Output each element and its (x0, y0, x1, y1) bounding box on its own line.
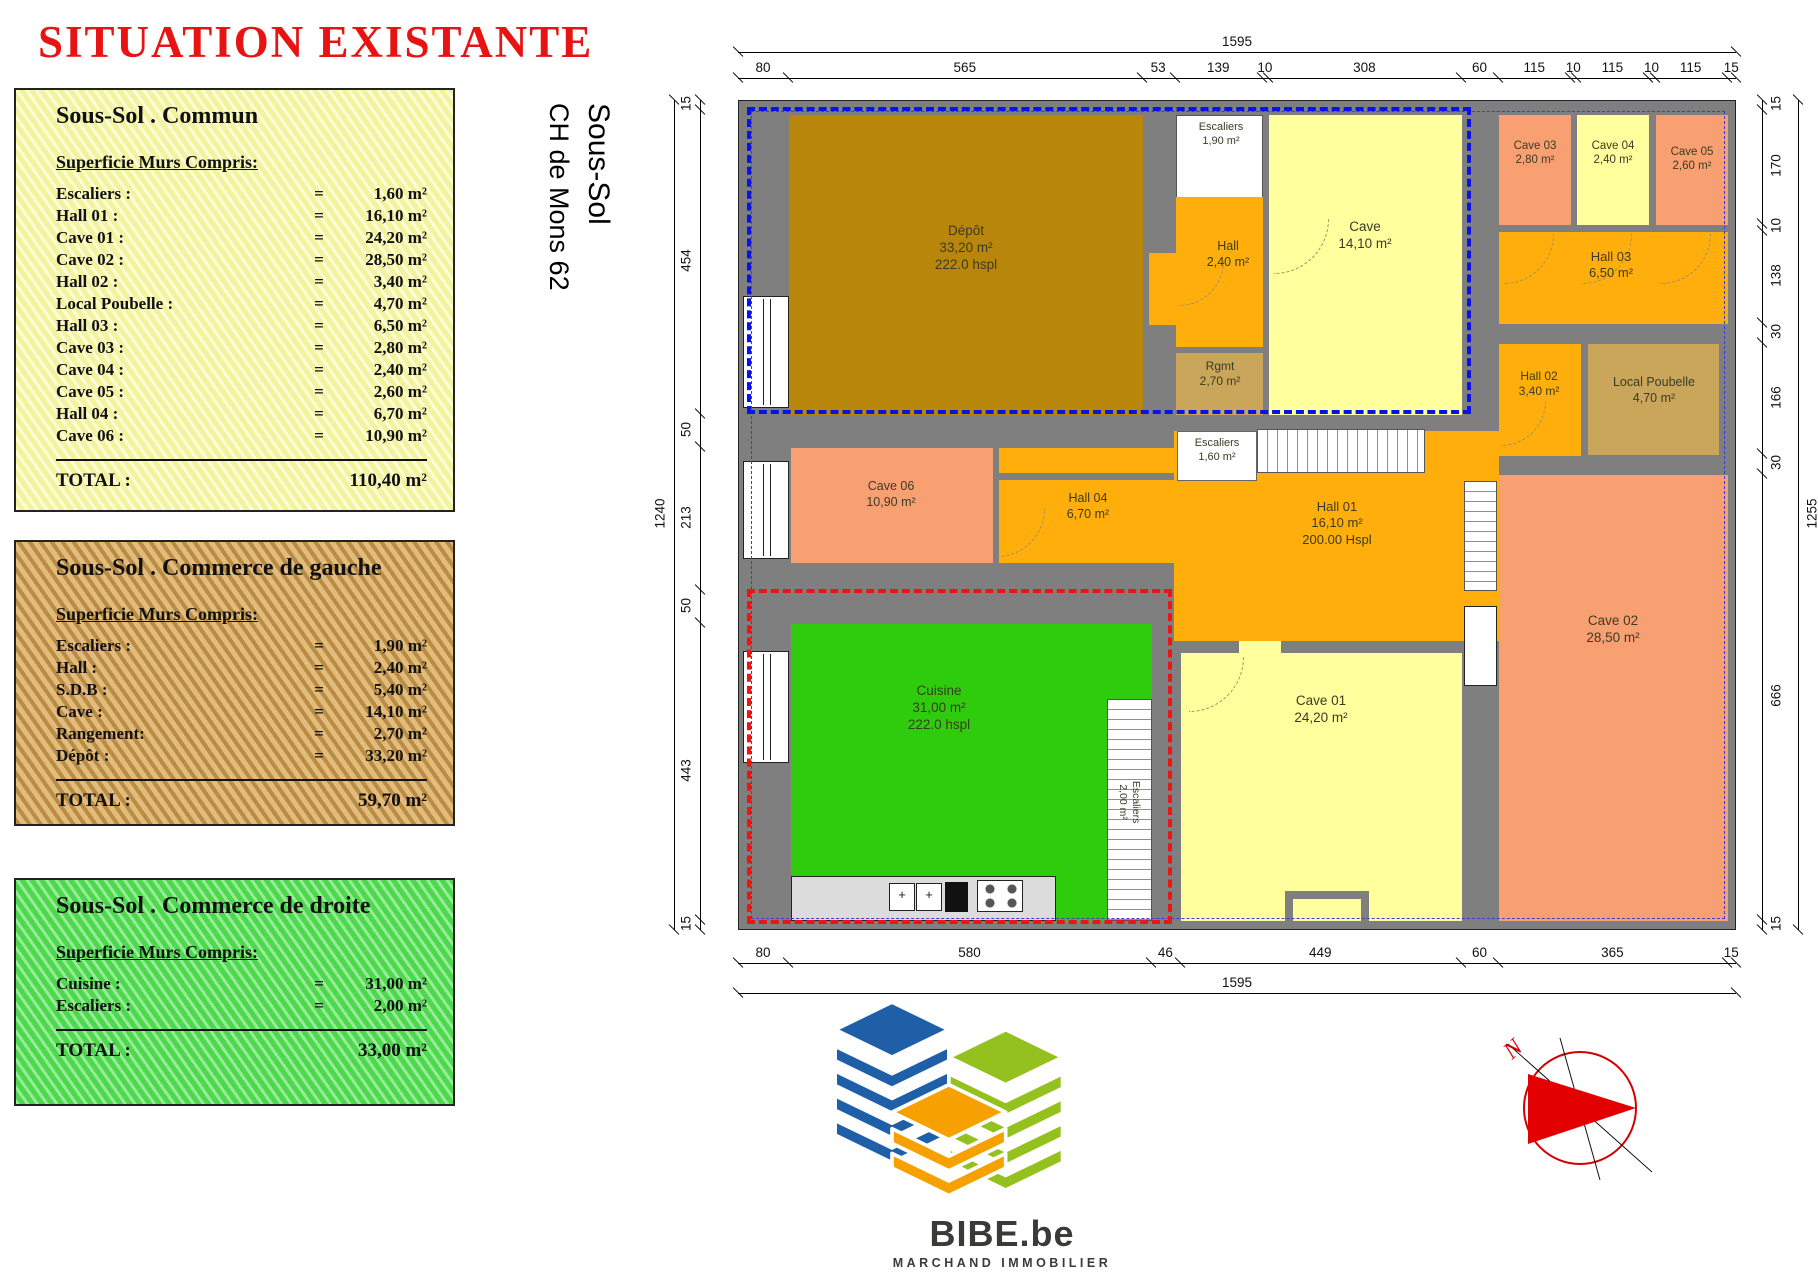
panel-title: Sous-Sol . Commun (16, 90, 453, 130)
total-row: TOTAL :59,70 m² (56, 779, 427, 812)
area-row: Cave 03 :=2,80 m² (16, 337, 453, 359)
area-row: Hall :=2,40 m² (16, 657, 453, 679)
dim-right-overall-line (1798, 100, 1799, 930)
area-row: Local Poubelle :=4,70 m² (16, 293, 453, 315)
area-row: Dépôt :=33,20 m² (16, 745, 453, 767)
dim-bottom-line (738, 963, 1736, 964)
area-row: Cave 04 :=2,40 m² (16, 359, 453, 381)
dim-bottom-value: 449 (1290, 945, 1350, 960)
logo-wordmark: BIBE.be (822, 1213, 1182, 1255)
dim-left-value: 443 (679, 740, 694, 800)
dim-top-value: 60 (1449, 60, 1509, 75)
dim-top-value: 53 (1128, 60, 1188, 75)
dim-top-line (738, 78, 1736, 79)
dim-right-overall-value: 1255 (1805, 484, 1818, 544)
north-arrow: N (1490, 1030, 1670, 1190)
compass-n-label: N (1498, 1033, 1530, 1065)
area-row: Rangement:=2,70 m² (16, 723, 453, 745)
panel-green: Sous-Sol . Commerce de droiteSuperficie … (14, 878, 455, 1106)
dim-right-value: 15 (1769, 893, 1784, 953)
dim-bottom-value: 15 (1701, 945, 1761, 960)
area-row: Cave 05 :=2,60 m² (16, 381, 453, 403)
area-row: Hall 02 :=3,40 m² (16, 271, 453, 293)
dim-top-value: 565 (935, 60, 995, 75)
dim-left-value: 454 (679, 230, 694, 290)
dim-left-overall-value: 1240 (653, 484, 668, 544)
dim-right-value: 166 (1769, 367, 1784, 427)
area-row: Cuisine :=31,00 m² (16, 973, 453, 995)
panel-subtitle: Superficie Murs Compris: (16, 582, 453, 635)
dim-right-value: 15 (1769, 74, 1784, 134)
dim-right-value: 30 (1769, 301, 1784, 361)
page-title: SITUATION EXISTANTE (38, 16, 593, 68)
dim-top-value: 10 (1235, 60, 1295, 75)
panel-subtitle: Superficie Murs Compris: (16, 130, 453, 183)
area-row: Cave 02 :=28,50 m² (16, 249, 453, 271)
area-row: Hall 01 :=16,10 m² (16, 205, 453, 227)
panel-wood: Sous-Sol . Commerce de gaucheSuperficie … (14, 540, 455, 826)
dim-top-value: 80 (733, 60, 793, 75)
dim-left-value: 15 (679, 893, 694, 953)
panel-subtitle: Superficie Murs Compris: (16, 920, 453, 973)
dim-top-overall-value: 1595 (1207, 34, 1267, 49)
dim-right-value: 138 (1769, 245, 1784, 305)
area-row: Escaliers :=1,60 m² (16, 183, 453, 205)
area-row: Escaliers :=1,90 m² (16, 635, 453, 657)
area-row: Cave 06 :=10,90 m² (16, 425, 453, 447)
panel-yellow: Sous-Sol . CommunSuperficie Murs Compris… (14, 88, 455, 512)
dim-bottom-value: 46 (1135, 945, 1195, 960)
dim-left-value: 50 (679, 399, 694, 459)
dim-bottom-value: 580 (940, 945, 1000, 960)
panel-title: Sous-Sol . Commerce de droite (16, 880, 453, 920)
dim-top-value: 15 (1701, 60, 1761, 75)
dim-left-value: 50 (679, 575, 694, 635)
dim-bottom-value: 60 (1449, 945, 1509, 960)
area-row: Cave :=14,10 m² (16, 701, 453, 723)
dim-right-value: 30 (1769, 433, 1784, 493)
dim-left-value: 15 (679, 74, 694, 134)
logo-tagline: MARCHAND IMMOBILIER (822, 1256, 1182, 1270)
area-row: Escaliers :=2,00 m² (16, 995, 453, 1017)
dim-left-value: 213 (679, 487, 694, 547)
dim-bottom-overall-value: 1595 (1207, 975, 1267, 990)
area-row: Cave 01 :=24,20 m² (16, 227, 453, 249)
area-row: Hall 03 :=6,50 m² (16, 315, 453, 337)
floor-plan: + + Dépôt33,20 m²222.0 hsplEscaliers1,90… (738, 100, 1736, 930)
compass-needle (1528, 1074, 1636, 1144)
zone-commerce-droite (747, 589, 1172, 924)
area-row: Hall 04 :=6,70 m² (16, 403, 453, 425)
dim-bottom-value: 80 (733, 945, 793, 960)
panel-title: Sous-Sol . Commerce de gauche (16, 542, 453, 582)
zone-commerce-gauche (747, 107, 1471, 414)
area-row: S.D.B :=5,40 m² (16, 679, 453, 701)
bibe-logo (826, 1000, 1178, 1228)
total-row: TOTAL :33,00 m² (56, 1029, 427, 1062)
dim-bottom-overall-line (738, 993, 1736, 994)
dim-top-overall-line (738, 52, 1736, 53)
dim-right-value: 170 (1769, 135, 1784, 195)
dim-top-value: 308 (1334, 60, 1394, 75)
dim-bottom-value: 365 (1582, 945, 1642, 960)
dim-left-line (700, 100, 701, 930)
total-row: TOTAL :110,40 m² (56, 459, 427, 492)
dim-right-value: 666 (1769, 666, 1784, 726)
dim-left-overall-line (674, 100, 675, 930)
